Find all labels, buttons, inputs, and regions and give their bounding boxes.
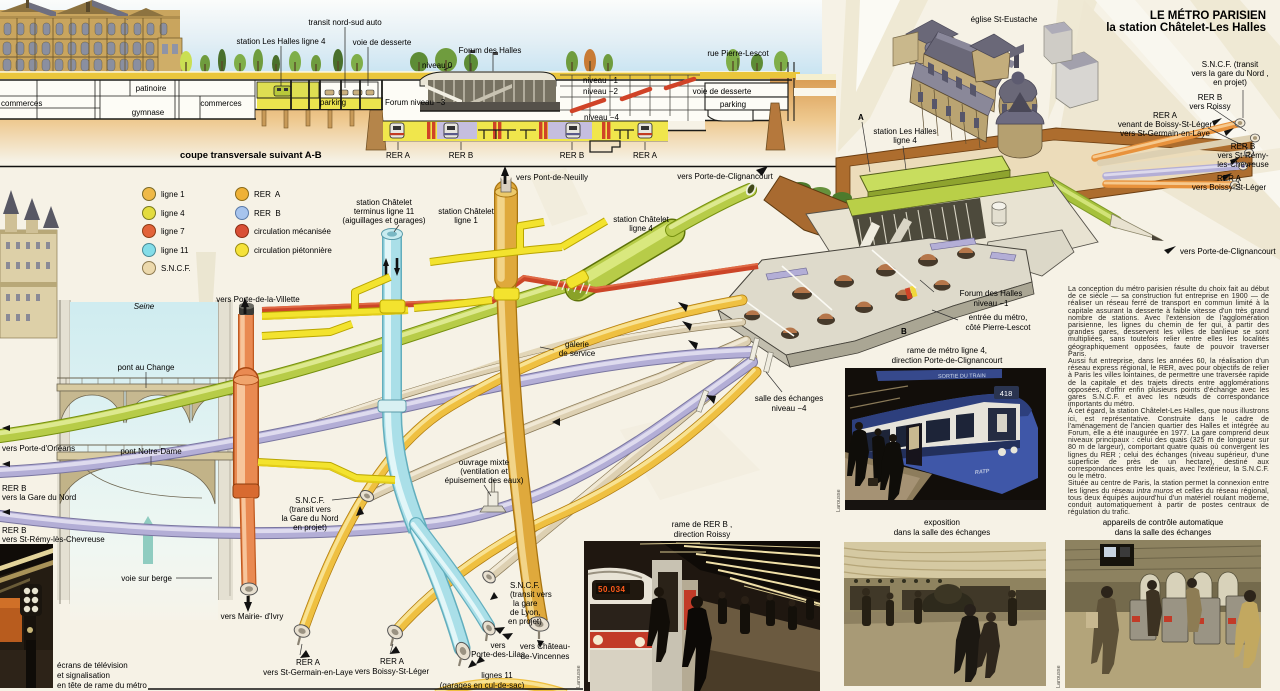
svg-text:RER A: RER A — [1217, 174, 1242, 183]
svg-text:vers Mairie- d'Ivry: vers Mairie- d'Ivry — [221, 612, 284, 621]
svg-text:patinoire: patinoire — [136, 84, 167, 93]
svg-text:(ventilation et: (ventilation et — [460, 467, 508, 476]
svg-text:dans la salle des échanges: dans la salle des échanges — [1115, 528, 1212, 537]
svg-text:LE MÉTRO PARISIEN: LE MÉTRO PARISIEN — [1150, 9, 1266, 22]
svg-text:RER B: RER B — [1198, 93, 1222, 102]
svg-text:vers St-Germain-en-Laye: vers St-Germain-en-Laye — [1120, 129, 1210, 138]
svg-text:vers St-Rémy-: vers St-Rémy- — [1217, 151, 1268, 160]
svg-text:rame de RER B ,: rame de RER B , — [672, 520, 732, 529]
svg-text:coupe transversale suivant A-B: coupe transversale suivant A-B — [180, 150, 322, 161]
svg-text:de-Vincennes: de-Vincennes — [521, 652, 570, 661]
svg-text:418: 418 — [1000, 389, 1013, 398]
svg-text:exposition: exposition — [924, 518, 960, 527]
svg-text:en projet): en projet) — [293, 523, 327, 532]
svg-text:Porte-des-Lilas: Porte-des-Lilas — [471, 650, 525, 659]
svg-text:voie sur berge: voie sur berge — [121, 574, 172, 583]
svg-text:station Les Halles ligne 4: station Les Halles ligne 4 — [237, 37, 326, 46]
svg-text:RER A: RER A — [380, 657, 405, 666]
svg-text:vers Château-: vers Château- — [520, 642, 571, 651]
svg-text:(transit vers: (transit vers — [289, 505, 331, 514]
svg-text:gymnase: gymnase — [132, 108, 165, 117]
svg-text:Seine: Seine — [134, 302, 155, 311]
svg-text:RER A: RER A — [1153, 111, 1178, 120]
svg-text:parking: parking — [720, 100, 746, 109]
svg-text:ligne 7: ligne 7 — [161, 227, 185, 236]
svg-text:S.N.C.F.: S.N.C.F. — [295, 496, 325, 505]
svg-text:RER A: RER A — [633, 151, 658, 160]
svg-text:ligne 11: ligne 11 — [161, 246, 189, 255]
svg-text:terminus ligne 11: terminus ligne 11 — [354, 207, 415, 216]
svg-text:épuisement des eaux): épuisement des eaux) — [445, 476, 524, 485]
svg-text:B: B — [901, 327, 907, 336]
svg-text:niveau −2: niveau −2 — [583, 87, 618, 96]
svg-text:les-Chevreuse: les-Chevreuse — [1217, 160, 1269, 169]
svg-text:pont Notre-Dame: pont Notre-Dame — [120, 447, 182, 456]
svg-text:circulation piétonnière: circulation piétonnière — [254, 246, 332, 255]
svg-text:venant de Boissy-St-Léger: venant de Boissy-St-Léger — [1118, 120, 1213, 129]
svg-text:niveau −4: niveau −4 — [772, 404, 807, 413]
svg-text:de service: de service — [559, 349, 596, 358]
svg-text:vers Porte-de-Clignancourt: vers Porte-de-Clignancourt — [677, 172, 773, 181]
svg-text:station Châtelet: station Châtelet — [438, 207, 494, 216]
svg-text:vers St-Germain-en-Laye: vers St-Germain-en-Laye — [263, 668, 353, 677]
svg-text:(transit vers: (transit vers — [510, 590, 552, 599]
svg-text:vers Boissy-St-Léger: vers Boissy-St-Léger — [1192, 183, 1267, 192]
svg-text:en tête de rame du métro: en tête de rame du métro — [57, 681, 147, 690]
svg-text:vers Porte-de-Clignancourt: vers Porte-de-Clignancourt — [1180, 247, 1276, 256]
svg-text:RER B: RER B — [449, 151, 473, 160]
svg-text:RER A: RER A — [254, 190, 281, 199]
svg-text:RER B: RER B — [2, 484, 26, 493]
svg-text:écrans de télévision: écrans de télévision — [57, 661, 128, 670]
svg-text:direction Roissy: direction Roissy — [674, 530, 730, 539]
svg-text:Larousse: Larousse — [576, 665, 582, 688]
svg-text:vers: vers — [490, 641, 505, 650]
svg-text:station Châtelet: station Châtelet — [613, 215, 669, 224]
svg-text:vers la Gare du Nord: vers la Gare du Nord — [2, 493, 76, 502]
svg-text:dans la salle des échanges: dans la salle des échanges — [894, 528, 991, 537]
svg-text:RER B: RER B — [254, 209, 281, 218]
svg-text:transit nord-sud auto: transit nord-sud auto — [308, 18, 382, 27]
svg-text:vers Porte-de-la-Villette: vers Porte-de-la-Villette — [216, 295, 300, 304]
svg-text:niveau −1: niveau −1 — [583, 76, 618, 85]
svg-text:et signalisation: et signalisation — [57, 671, 110, 680]
svg-text:voie de desserte: voie de desserte — [693, 87, 752, 96]
svg-text:niveau −1: niveau −1 — [974, 299, 1009, 308]
svg-text:A: A — [858, 113, 864, 122]
svg-text:niveau 0: niveau 0 — [422, 61, 453, 70]
svg-text:Forum des Halles: Forum des Halles — [459, 46, 522, 55]
svg-text:direction Porte-de-Clignancour: direction Porte-de-Clignancourt — [892, 356, 1004, 365]
svg-text:SORTIE DU TRAIN: SORTIE DU TRAIN — [938, 373, 986, 380]
svg-text:ouvrage mixte: ouvrage mixte — [459, 458, 510, 467]
svg-text:pont au Change: pont au Change — [118, 363, 175, 372]
svg-text:la Gare du Nord: la Gare du Nord — [282, 514, 339, 523]
svg-text:rame de métro ligne 4,: rame de métro ligne 4, — [907, 346, 987, 355]
svg-text:vers la gare du Nord ,: vers la gare du Nord , — [1192, 69, 1269, 78]
svg-text:niveau −4: niveau −4 — [584, 113, 619, 122]
svg-text:vers Roissy: vers Roissy — [1189, 102, 1230, 111]
svg-text:galerie: galerie — [565, 340, 590, 349]
svg-text:Larousse: Larousse — [1056, 665, 1062, 688]
svg-text:RER B: RER B — [560, 151, 584, 160]
svg-text:vers Pont-de-Neuilly: vers Pont-de-Neuilly — [516, 173, 588, 182]
svg-text:salle des échanges: salle des échanges — [755, 394, 824, 403]
svg-text:station Les Halles: station Les Halles — [873, 127, 936, 136]
svg-text:côté Pierre-Lescot: côté Pierre-Lescot — [966, 323, 1032, 332]
svg-text:RER A: RER A — [386, 151, 411, 160]
svg-text:RER B: RER B — [1231, 142, 1255, 151]
svg-text:voie de desserte: voie de desserte — [353, 38, 412, 47]
svg-text:ligne 4: ligne 4 — [629, 224, 653, 233]
svg-text:S.N.C.F.: S.N.C.F. — [510, 581, 540, 590]
svg-text:Forum niveau −3: Forum niveau −3 — [385, 98, 446, 107]
svg-text:vers St-Rémy-lès-Chevreuse: vers St-Rémy-lès-Chevreuse — [2, 535, 105, 544]
svg-text:de Lyon,: de Lyon, — [510, 608, 540, 617]
svg-text:S.N.C.F. (transit: S.N.C.F. (transit — [1202, 60, 1259, 69]
svg-text:parking: parking — [320, 98, 346, 107]
svg-text:ligne 1: ligne 1 — [161, 190, 185, 199]
svg-text:vers Porte-d'Orléans: vers Porte-d'Orléans — [2, 444, 75, 453]
svg-text:commerces: commerces — [1, 99, 42, 108]
svg-text:ligne 1: ligne 1 — [454, 216, 478, 225]
svg-text:lignes 11: lignes 11 — [481, 671, 513, 680]
svg-text:RER A: RER A — [296, 658, 321, 667]
svg-text:S.N.C.F.: S.N.C.F. — [161, 264, 191, 273]
svg-text:RER B: RER B — [2, 526, 26, 535]
svg-text:50.034: 50.034 — [598, 585, 626, 594]
svg-text:commerces: commerces — [200, 99, 241, 108]
svg-text:ligne 4: ligne 4 — [161, 209, 185, 218]
svg-text:circulation mécanisée: circulation mécanisée — [254, 227, 331, 236]
svg-text:la gare: la gare — [513, 599, 538, 608]
svg-text:Larousse: Larousse — [836, 489, 842, 512]
svg-text:ligne 4: ligne 4 — [893, 136, 917, 145]
svg-text:église St-Eustache: église St-Eustache — [971, 15, 1038, 24]
svg-text:(aiguillages et garages): (aiguillages et garages) — [342, 216, 425, 225]
svg-text:appareils de contrôle automati: appareils de contrôle automatique — [1103, 518, 1224, 527]
svg-text:en projet): en projet) — [1213, 78, 1247, 87]
svg-text:vers Boissy-St-Léger: vers Boissy-St-Léger — [355, 667, 430, 676]
svg-text:entrée du métro,: entrée du métro, — [969, 313, 1028, 322]
svg-text:Forum des Halles: Forum des Halles — [960, 289, 1023, 298]
svg-text:station Châtelet: station Châtelet — [356, 198, 412, 207]
svg-text:en projet): en projet) — [508, 617, 542, 626]
svg-text:rue Pierre-Lescot: rue Pierre-Lescot — [707, 49, 769, 58]
svg-text:la station Châtelet-Les Halles: la station Châtelet-Les Halles — [1106, 22, 1266, 34]
